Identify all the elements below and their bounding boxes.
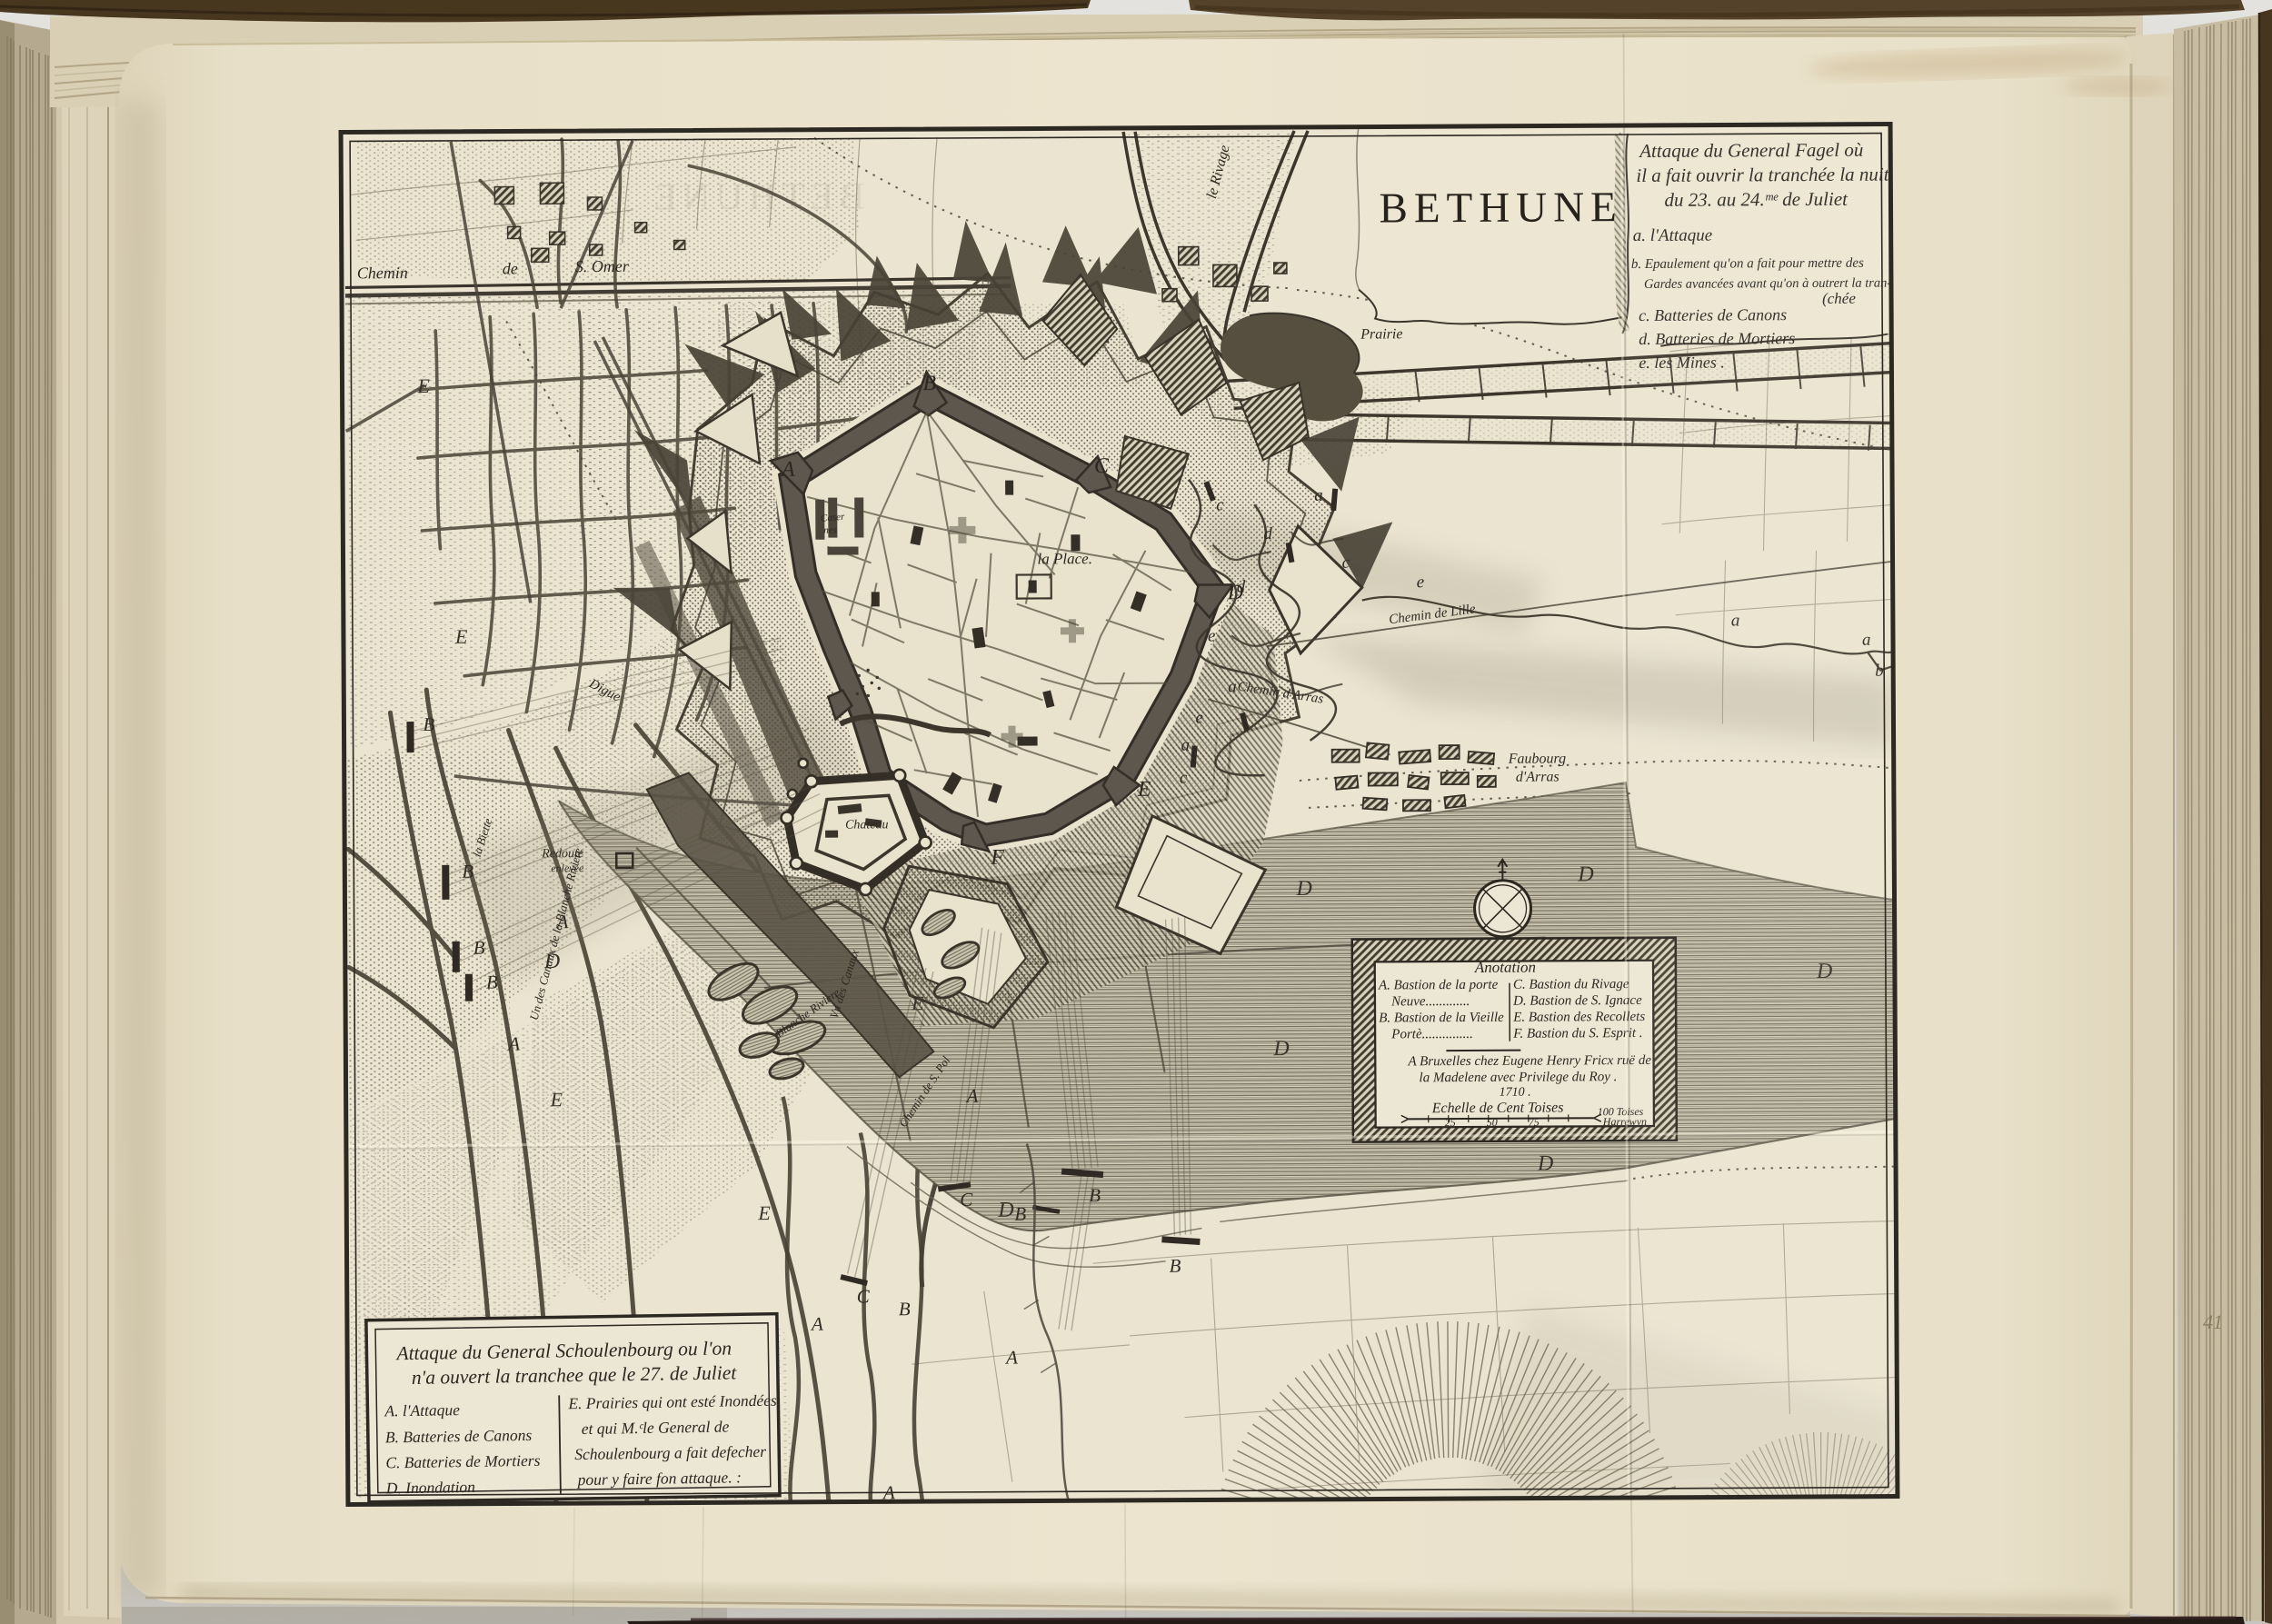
svg-text:25: 25 (1445, 1116, 1456, 1129)
svg-text:D: D (1272, 1037, 1289, 1061)
svg-text:D: D (1577, 862, 1593, 886)
svg-text:Caser: Caser (821, 512, 846, 524)
svg-text:de: de (503, 259, 518, 277)
svg-text:Anotation: Anotation (1474, 959, 1536, 976)
svg-text:Neuve.............: Neuve............. (1390, 994, 1470, 1009)
svg-text:c: c (1180, 769, 1188, 788)
svg-text:E: E (550, 1088, 563, 1111)
svg-text:A Bruxelles chez Eugene Henry: A Bruxelles chez Eugene Henry Fricx ruë … (1407, 1053, 1651, 1069)
svg-text:A. Bastion de la porte: A. Bastion de la porte (1378, 978, 1499, 993)
svg-text:D. Bastion de S. Ignace: D. Bastion de S. Ignace (1512, 993, 1642, 1009)
svg-text:C. Batteries de Mortiers: C. Batteries de Mortiers (385, 1451, 541, 1472)
svg-text:B: B (462, 861, 473, 882)
svg-text:C: C (960, 1189, 973, 1211)
svg-text:a: a (1314, 486, 1323, 505)
svg-text:C: C (1094, 454, 1110, 478)
svg-text:1710 .: 1710 . (1500, 1086, 1531, 1100)
svg-text:d'Arras: d'Arras (1516, 769, 1560, 784)
svg-text:B: B (473, 937, 485, 959)
svg-text:pour y faire fon attaque. :: pour y faire fon attaque. : (576, 1468, 742, 1489)
svg-text:BETHUNE: BETHUNE (1379, 184, 1623, 232)
svg-text:B. Bastion de la Vieille: B. Bastion de la Vieille (1379, 1011, 1504, 1026)
svg-text:A: A (810, 1313, 823, 1335)
svg-text:A: A (965, 1085, 979, 1107)
svg-text:C. Bastion du Rivage: C. Bastion du Rivage (1513, 977, 1629, 992)
svg-text:E: E (416, 374, 430, 397)
svg-text:d: d (1237, 577, 1246, 596)
svg-text:B. Batteries de Canons: B. Batteries de Canons (385, 1426, 533, 1447)
svg-text:Schoulenbourg a fait defecher: Schoulenbourg a fait defecher (574, 1442, 766, 1463)
svg-text:B: B (899, 1298, 911, 1320)
svg-text:BETHUNE: BETHUNE (648, 175, 864, 218)
svg-text:F: F (990, 846, 1004, 870)
svg-text:75: 75 (1529, 1116, 1540, 1129)
svg-text:F. Bastion du S. Esprit .: F. Bastion du S. Esprit . (1512, 1026, 1642, 1041)
svg-text:B: B (486, 971, 498, 993)
svg-text:a: a (1228, 677, 1237, 696)
svg-text:Portè...............: Portè............... (1390, 1027, 1473, 1041)
svg-text:B: B (1014, 1203, 1026, 1225)
svg-text:la Place.: la Place. (1037, 550, 1092, 567)
svg-text:nes: nes (823, 525, 837, 536)
svg-text:Chemin: Chemin (357, 264, 408, 282)
svg-text:E: E (911, 991, 924, 1014)
svg-text:D: D (1537, 1152, 1553, 1176)
svg-text:E: E (1137, 778, 1151, 802)
svg-text:B: B (922, 372, 936, 395)
svg-text:e: e (1417, 573, 1425, 592)
svg-text:E: E (757, 1201, 771, 1224)
svg-text:c: c (1216, 495, 1224, 514)
svg-text:S. Omer: S. Omer (575, 257, 630, 275)
svg-text:a: a (1181, 736, 1191, 755)
svg-text:c: c (1341, 553, 1350, 573)
svg-text:E: E (454, 625, 468, 648)
svg-text:D: D (1295, 877, 1311, 901)
svg-text:e: e (1208, 626, 1216, 645)
svg-text:B: B (1170, 1255, 1181, 1277)
svg-text:C: C (857, 1285, 871, 1307)
svg-text:50: 50 (1487, 1116, 1498, 1129)
svg-text:et qui M.ᶜle General de: et qui M.ᶜle General de (582, 1417, 730, 1438)
svg-text:A: A (506, 1032, 520, 1054)
svg-text:41: 41 (2203, 1310, 2223, 1333)
svg-text:Echelle de Cent Toises: Echelle de Cent Toises (1431, 1100, 1564, 1116)
svg-text:A: A (780, 458, 795, 482)
svg-text:D: D (997, 1199, 1013, 1222)
svg-text:Prairie: Prairie (1360, 326, 1402, 342)
svg-text:E. Prairies qui ont esté Inond: E. Prairies qui ont esté Inondées (567, 1391, 777, 1413)
svg-text:Chateau: Chateau (845, 818, 889, 832)
svg-text:la Madelene avec Privilege du: la Madelene avec Privilege du Roy . (1419, 1070, 1617, 1085)
svg-text:Faubourg: Faubourg (1508, 751, 1566, 766)
svg-text:A: A (1004, 1347, 1018, 1369)
svg-text:e: e (1195, 709, 1203, 728)
svg-text:B: B (423, 713, 434, 735)
svg-text:B: B (1089, 1184, 1101, 1206)
svg-text:A. l'Attaque: A. l'Attaque (384, 1400, 460, 1420)
svg-text:d: d (1263, 524, 1272, 543)
